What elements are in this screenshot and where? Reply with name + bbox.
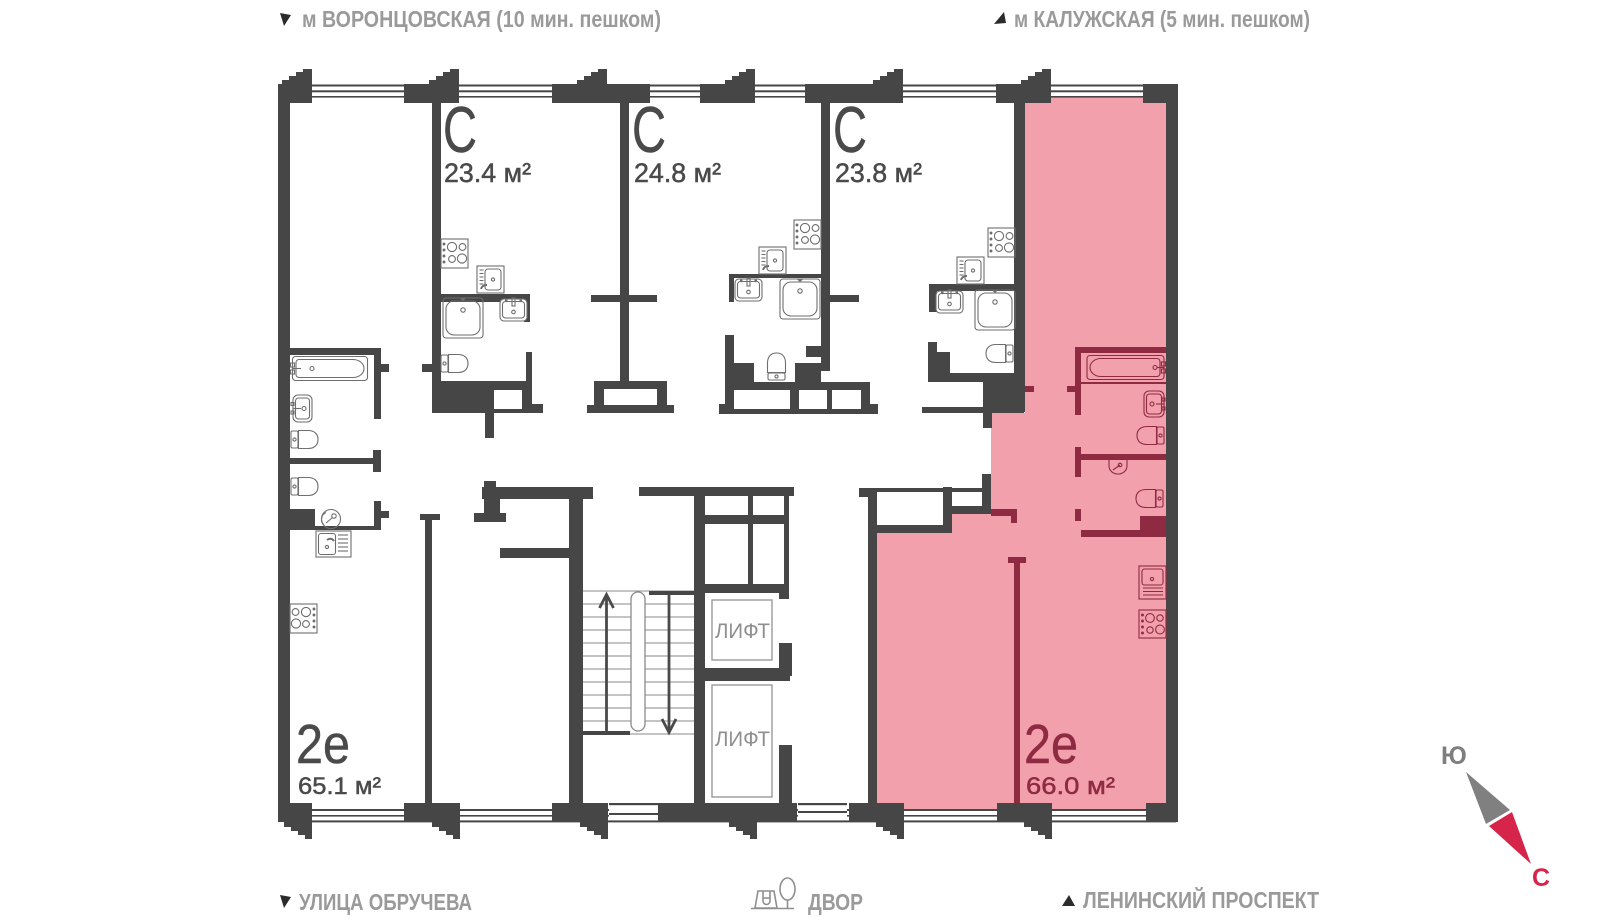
svg-text:С: С bbox=[632, 93, 666, 166]
svg-text:С: С bbox=[443, 93, 477, 166]
svg-text:24.8 м²: 24.8 м² bbox=[634, 158, 721, 188]
svg-text:ЛИФТ: ЛИФТ bbox=[715, 620, 770, 643]
svg-text:23.8 м²: 23.8 м² bbox=[835, 158, 922, 188]
svg-text:С: С bbox=[1532, 864, 1550, 892]
svg-text:2e: 2e bbox=[296, 713, 350, 775]
svg-text:Ю: Ю bbox=[1441, 742, 1467, 770]
svg-text:ЛИФТ: ЛИФТ bbox=[715, 728, 770, 751]
svg-text:66.0 м²: 66.0 м² bbox=[1026, 773, 1115, 800]
svg-text:ДВОР: ДВОР bbox=[808, 889, 863, 915]
svg-text:С: С bbox=[833, 93, 867, 166]
svg-text:23.4 м²: 23.4 м² bbox=[444, 158, 531, 188]
svg-text:УЛИЦА ОБРУЧЕВА: УЛИЦА ОБРУЧЕВА bbox=[299, 889, 472, 915]
svg-text:2e: 2e bbox=[1024, 713, 1078, 775]
svg-text:м КАЛУЖСКАЯ (5 мин. пешком): м КАЛУЖСКАЯ (5 мин. пешком) bbox=[1014, 6, 1310, 32]
svg-text:м ВОРОНЦОВСКАЯ (10 мин. пешко: м ВОРОНЦОВСКАЯ (10 мин. пешком) bbox=[302, 6, 661, 32]
svg-text:65.1 м²: 65.1 м² bbox=[298, 773, 381, 800]
svg-text:ЛЕНИНСКИЙ ПРОСПЕКТ: ЛЕНИНСКИЙ ПРОСПЕКТ bbox=[1083, 886, 1319, 913]
